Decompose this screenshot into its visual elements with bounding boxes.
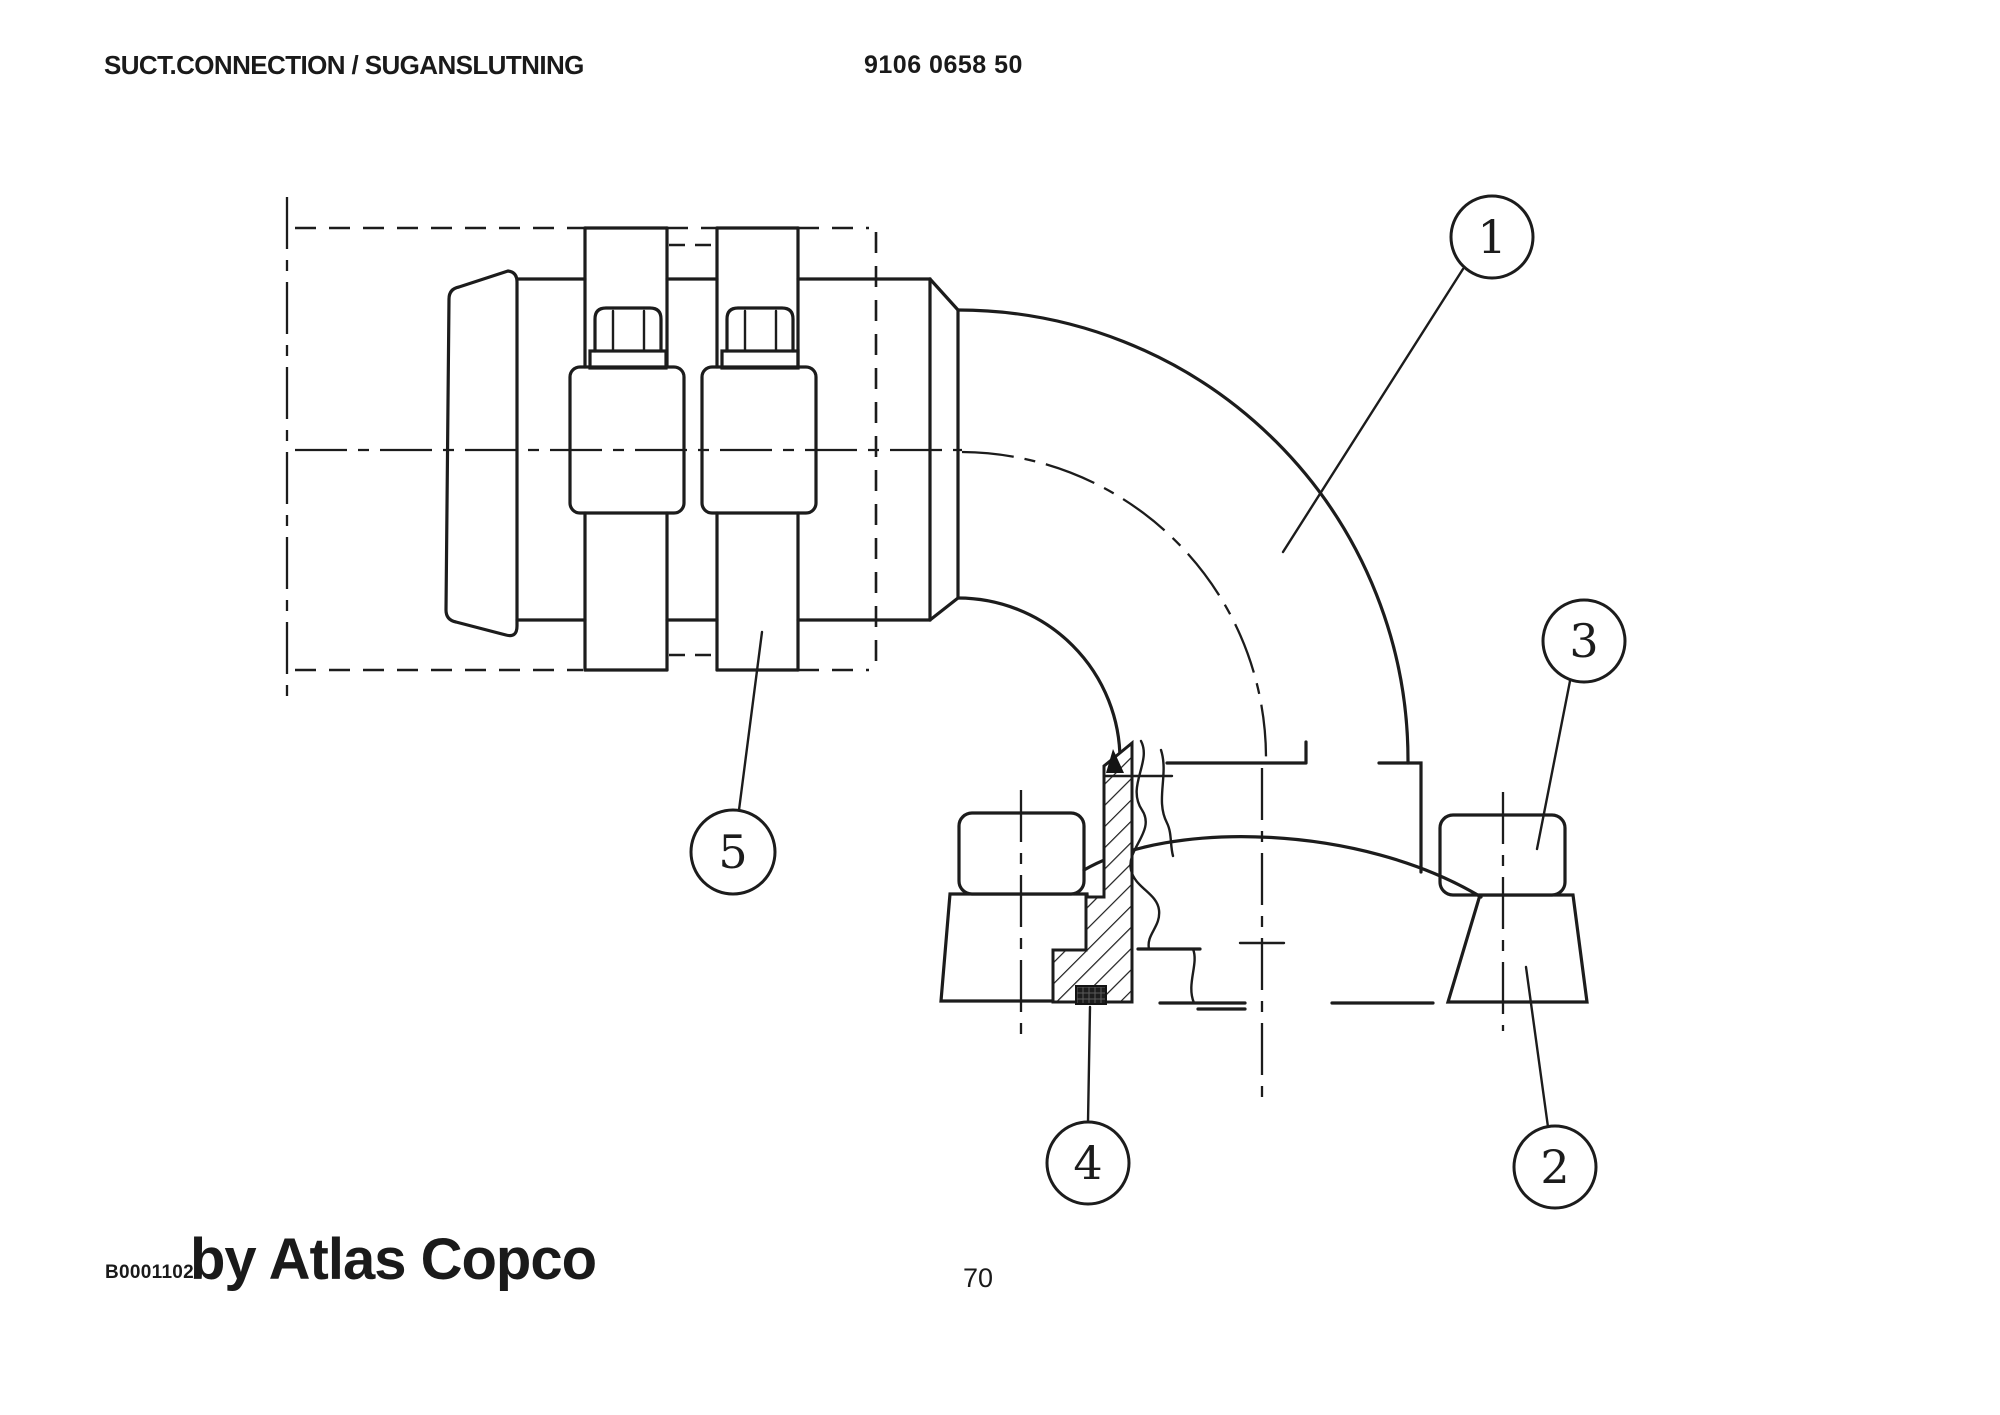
o-ring-seal [1076, 986, 1106, 1004]
callout-4-leader [1088, 1007, 1090, 1122]
callout-5-label: 5 [718, 825, 747, 879]
callout-5-leader [739, 632, 762, 810]
callout-3-label: 3 [1569, 614, 1598, 668]
callout-1: 1 [1283, 196, 1533, 552]
callout-3: 3 [1537, 600, 1625, 849]
page-number: 70 [963, 1263, 993, 1294]
flange-assembly [941, 741, 1587, 1105]
elbow-inner-arc [958, 598, 1120, 760]
elbow-outer-arc [958, 310, 1408, 763]
document-code: B0001102 [105, 1262, 194, 1284]
catalog-page: SUCT.CONNECTION / SUGANSLUTNING 9106 065… [0, 0, 2000, 1415]
clamp-1-bolt [590, 308, 666, 368]
callouts: 1 2 3 4 5 [691, 196, 1625, 1208]
centerlines [287, 197, 1266, 758]
brand-logotype: by Atlas Copco [190, 1226, 596, 1293]
break-lines [1130, 741, 1194, 1003]
callout-1-leader [1283, 269, 1463, 552]
clamp-2-bolt [722, 308, 798, 368]
clamp-1-housing [570, 367, 684, 513]
callout-1-label: 1 [1477, 210, 1506, 264]
callout-2-label: 2 [1540, 1140, 1569, 1194]
flange-right-nut [1448, 895, 1587, 1002]
callout-4-label: 4 [1073, 1136, 1102, 1190]
technical-drawing: 1 2 3 4 5 [0, 0, 2000, 1415]
clamp-2-housing [702, 367, 816, 513]
hose-bead [446, 271, 517, 636]
elbow-bend [958, 310, 1408, 763]
callout-4: 4 [1047, 1007, 1129, 1204]
